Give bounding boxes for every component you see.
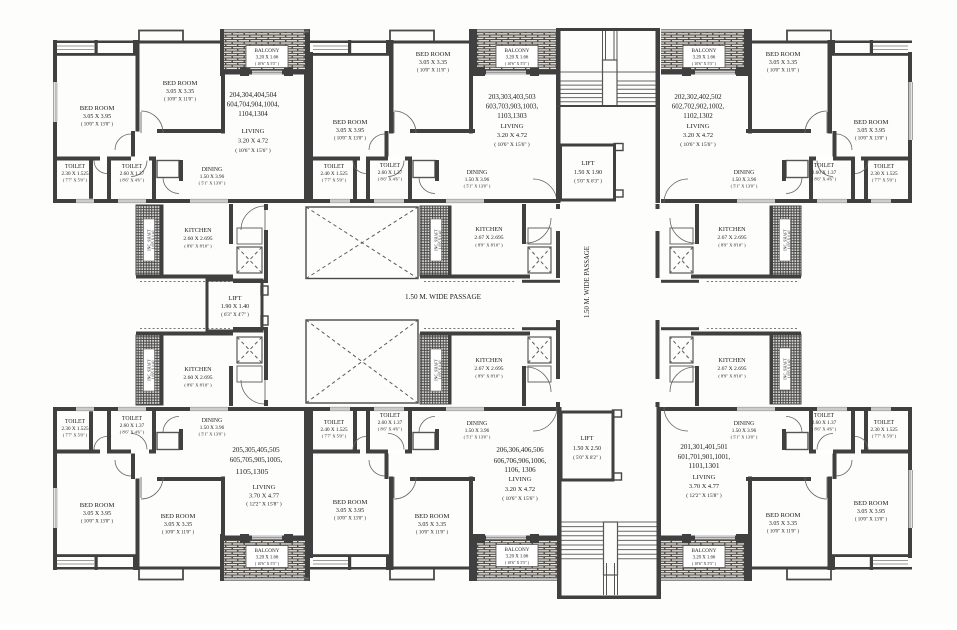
svg-text:( 10'6" X 15'6" ): ( 10'6" X 15'6" ) <box>494 141 530 148</box>
svg-text:3.05 X 3.35: 3.05 X 3.35 <box>164 522 192 528</box>
svg-text:3.20 X 4.72: 3.20 X 4.72 <box>683 132 713 139</box>
svg-text:( 10'6" X 5'5" ): ( 10'6" X 5'5" ) <box>505 61 530 66</box>
svg-text:( 8'6" X 4'6" ): ( 8'6" X 4'6" ) <box>812 427 837 432</box>
svg-text:2.30 X 1.525: 2.30 X 1.525 <box>870 171 897 177</box>
svg-text:( 8'6" X 4'6" ): ( 8'6" X 4'6" ) <box>378 177 403 182</box>
svg-text:BED ROOM: BED ROOM <box>854 119 889 126</box>
svg-text:1.095 X 0.40: 1.095 X 0.40 <box>152 230 156 249</box>
svg-text:206,306,406,506: 206,306,406,506 <box>496 446 544 454</box>
svg-text:3.05 X 3.35: 3.05 X 3.35 <box>769 521 797 527</box>
svg-text:2.60 X 2.695: 2.60 X 2.695 <box>183 236 212 242</box>
svg-text:( 5'1" X 13'0" ): ( 5'1" X 13'0" ) <box>199 181 226 186</box>
svg-text:1105,1305: 1105,1305 <box>236 467 269 476</box>
svg-text:2.67 X 2.695: 2.67 X 2.695 <box>474 366 503 372</box>
svg-text:BED ROOM: BED ROOM <box>163 80 198 87</box>
svg-text:( 10'0" X 11'0" ): ( 10'0" X 11'0" ) <box>416 531 448 536</box>
svg-text:202,302,402,502: 202,302,402,502 <box>674 93 722 101</box>
svg-text:( 10'0" X 11'0" ): ( 10'0" X 11'0" ) <box>164 98 196 103</box>
svg-text:3.20 X 4.72: 3.20 X 4.72 <box>238 138 268 145</box>
svg-text:601,701,901,1001,: 601,701,901,1001, <box>678 453 731 461</box>
svg-text:1.50 X 3.96: 1.50 X 3.96 <box>200 174 225 180</box>
svg-text:BALCONY: BALCONY <box>504 547 529 553</box>
svg-text:LIVING: LIVING <box>687 123 710 130</box>
svg-text:1103,1303: 1103,1303 <box>497 112 527 120</box>
svg-text:3.20 X 4.72: 3.20 X 4.72 <box>505 486 535 493</box>
svg-text:( 8'6" X 4'6" ): ( 8'6" X 4'6" ) <box>812 177 837 182</box>
svg-text:BED ROOM: BED ROOM <box>80 502 115 509</box>
svg-text:KITCHEN: KITCHEN <box>718 357 746 364</box>
svg-text:LIVING: LIVING <box>253 484 276 491</box>
svg-text:( 6'3" X 4'7" ): ( 6'3" X 4'7" ) <box>221 313 249 318</box>
svg-text:( 5'1" X 13'0" ): ( 5'1" X 13'0" ) <box>731 184 758 189</box>
svg-text:( 5'0" X 6'3" ): ( 5'0" X 6'3" ) <box>574 180 602 185</box>
svg-text:( 5'1" X 13'0" ): ( 5'1" X 13'0" ) <box>731 435 758 440</box>
svg-text:2.67 X 2.695: 2.67 X 2.695 <box>717 366 746 372</box>
svg-text:3.05 X 3.35: 3.05 X 3.35 <box>419 60 447 66</box>
svg-text:( 10'0" X 13'0" ): ( 10'0" X 13'0" ) <box>334 517 366 522</box>
svg-text:3.05 X 3.95: 3.05 X 3.95 <box>336 508 364 514</box>
svg-text:1.50 M. WIDE PASSAGE: 1.50 M. WIDE PASSAGE <box>584 246 591 318</box>
svg-text:DINING: DINING <box>734 421 755 427</box>
svg-text:606,706,906,1006,: 606,706,906,1006, <box>494 457 547 465</box>
svg-text:( 10'6" X 5'5" ): ( 10'6" X 5'5" ) <box>255 61 280 66</box>
svg-text:BALCONY: BALCONY <box>254 548 279 554</box>
svg-text:TOILET: TOILET <box>65 164 86 170</box>
svg-text:2.30 X 1.525: 2.30 X 1.525 <box>61 426 88 432</box>
svg-text:( 7'7" X 5'0" ): ( 7'7" X 5'0" ) <box>872 178 897 183</box>
svg-text:2.30 X 1.525: 2.30 X 1.525 <box>61 171 88 177</box>
svg-text:3.05 X 3.95: 3.05 X 3.95 <box>83 511 111 517</box>
svg-text:1102,1302: 1102,1302 <box>683 112 713 120</box>
svg-text:( 8'6" X 4'6" ): ( 8'6" X 4'6" ) <box>378 427 403 432</box>
svg-text:1104,1304: 1104,1304 <box>238 110 268 118</box>
svg-text:DINING: DINING <box>202 418 223 424</box>
svg-text:BED ROOM: BED ROOM <box>766 512 801 519</box>
svg-text:TOILET: TOILET <box>122 164 143 170</box>
svg-text:3.05 X 3.95: 3.05 X 3.95 <box>336 128 364 134</box>
svg-text:( 5'1" X 13'0" ): ( 5'1" X 13'0" ) <box>464 184 491 189</box>
svg-text:TOILET: TOILET <box>874 420 895 426</box>
svg-text:( 10'6" X 15'6" ): ( 10'6" X 15'6" ) <box>235 147 271 154</box>
svg-text:LIFT: LIFT <box>228 295 241 302</box>
svg-text:( 10'0" X 13'0" ): ( 10'0" X 13'0" ) <box>81 520 113 525</box>
svg-text:LIVING: LIVING <box>501 123 524 130</box>
svg-text:BED ROOM: BED ROOM <box>333 499 368 506</box>
svg-text:BED ROOM: BED ROOM <box>333 119 368 126</box>
svg-text:( 8'6" X 4'6" ): ( 8'6" X 4'6" ) <box>120 430 145 435</box>
svg-text:( 10'0" X 13'0" ): ( 10'0" X 13'0" ) <box>81 123 113 128</box>
svg-text:( 8'9" X 8'10" ): ( 8'9" X 8'10" ) <box>718 243 746 248</box>
svg-text:DINING: DINING <box>467 421 488 427</box>
svg-text:KITCHEN: KITCHEN <box>475 226 503 233</box>
svg-text:BED ROOM: BED ROOM <box>415 513 450 520</box>
svg-text:BED ROOM: BED ROOM <box>854 500 889 507</box>
svg-text:TOILET: TOILET <box>380 163 401 169</box>
svg-text:2.60 X 1.37: 2.60 X 1.37 <box>120 171 145 177</box>
svg-text:1101,1301: 1101,1301 <box>688 461 719 470</box>
svg-text:1.50 X 3.96: 1.50 X 3.96 <box>200 425 225 431</box>
svg-text:604,704,904,1004,: 604,704,904,1004, <box>227 101 280 109</box>
svg-text:( 8'6" X 4'6" ): ( 8'6" X 4'6" ) <box>120 178 145 183</box>
svg-text:( 10'0" X 13'0" ): ( 10'0" X 13'0" ) <box>855 518 887 523</box>
svg-text:( 5'0" X 8'2" ): ( 5'0" X 8'2" ) <box>573 456 601 461</box>
svg-text:205,305,405,505: 205,305,405,505 <box>232 446 280 454</box>
svg-text:KITCHEN: KITCHEN <box>184 227 212 234</box>
svg-text:KITCHEN: KITCHEN <box>184 366 212 373</box>
svg-text:( 10'0" X 13'0" ): ( 10'0" X 13'0" ) <box>334 137 366 142</box>
svg-text:1.095 X 0.40: 1.095 X 0.40 <box>439 360 443 379</box>
svg-text:1.50 X 3.96: 1.50 X 3.96 <box>465 177 490 183</box>
svg-text:1.095 X 0.40: 1.095 X 0.40 <box>152 360 156 379</box>
svg-text:3.05 X 3.95: 3.05 X 3.95 <box>857 509 885 515</box>
svg-text:( 7'7" X 5'0" ): ( 7'7" X 5'0" ) <box>322 178 347 183</box>
svg-text:605,705,905,1005,: 605,705,905,1005, <box>230 456 283 464</box>
svg-text:1.50 X 3.96: 1.50 X 3.96 <box>732 428 757 434</box>
svg-text:1.095 X 0.40: 1.095 X 0.40 <box>439 230 443 249</box>
svg-text:LIVING: LIVING <box>509 476 532 483</box>
svg-text:( 5'1" X 13'0" ): ( 5'1" X 13'0" ) <box>464 435 491 440</box>
svg-text:TOILET: TOILET <box>814 163 835 169</box>
svg-text:2.60 X 1.37: 2.60 X 1.37 <box>812 170 837 176</box>
svg-text:( 7'7" X 5'0" ): ( 7'7" X 5'0" ) <box>872 434 897 439</box>
svg-text:3.05 X 3.35: 3.05 X 3.35 <box>418 522 446 528</box>
svg-text:2.60 X 1.37: 2.60 X 1.37 <box>812 420 837 426</box>
svg-text:201,301,401,501: 201,301,401,501 <box>680 443 728 451</box>
svg-text:( 8'9" X 8'10" ): ( 8'9" X 8'10" ) <box>475 243 503 248</box>
svg-text:1.50 M. WIDE PASSAGE: 1.50 M. WIDE PASSAGE <box>405 293 482 301</box>
svg-text:( 10'6" X 5'5" ): ( 10'6" X 5'5" ) <box>255 561 280 566</box>
svg-text:204,304,404,504: 204,304,404,504 <box>229 91 277 99</box>
svg-text:KITCHEN: KITCHEN <box>718 226 746 233</box>
svg-text:3.70 X 4.77: 3.70 X 4.77 <box>249 493 280 500</box>
svg-text:2.60 X 1.37: 2.60 X 1.37 <box>378 420 403 426</box>
svg-text:BALCONY: BALCONY <box>691 548 716 554</box>
svg-text:1.095 X 0.40: 1.095 X 0.40 <box>788 359 792 378</box>
svg-text:2.60 X 1.37: 2.60 X 1.37 <box>120 423 145 429</box>
svg-text:( 12'2" X 15'8" ): ( 12'2" X 15'8" ) <box>686 492 722 499</box>
svg-text:2.30 X 1.525: 2.30 X 1.525 <box>870 427 897 433</box>
svg-text:1.90 X 1.40: 1.90 X 1.40 <box>221 304 249 310</box>
svg-text:TOILET: TOILET <box>874 164 895 170</box>
svg-text:( 12'2" X 15'8" ): ( 12'2" X 15'8" ) <box>246 501 282 508</box>
svg-text:BALCONY: BALCONY <box>254 48 279 54</box>
svg-text:1106, 1306: 1106, 1306 <box>504 466 536 474</box>
svg-text:DINING: DINING <box>467 170 488 176</box>
svg-text:BED ROOM: BED ROOM <box>766 51 801 58</box>
svg-text:BALCONY: BALCONY <box>504 48 529 54</box>
svg-text:1.095 X 0.40: 1.095 X 0.40 <box>788 230 792 249</box>
svg-text:( 8'6" X 8'10" ): ( 8'6" X 8'10" ) <box>184 244 212 249</box>
svg-text:( 10'0" X 11'0" ): ( 10'0" X 11'0" ) <box>767 530 799 535</box>
svg-text:( 10'6" X 15'6" ): ( 10'6" X 15'6" ) <box>502 495 538 502</box>
svg-text:2.60 X 1.37: 2.60 X 1.37 <box>378 170 403 176</box>
svg-text:TOILET: TOILET <box>65 419 86 425</box>
svg-text:( 8'9" X 8'10" ): ( 8'9" X 8'10" ) <box>475 374 503 379</box>
svg-text:LIVING: LIVING <box>693 474 716 481</box>
svg-text:203,303,403,503: 203,303,403,503 <box>488 93 536 101</box>
svg-text:1.50 X 2.50: 1.50 X 2.50 <box>573 446 601 452</box>
svg-text:TOILET: TOILET <box>122 416 143 422</box>
svg-text:( 10'6" X 5'5" ): ( 10'6" X 5'5" ) <box>692 561 717 566</box>
svg-text:LIFT: LIFT <box>581 160 594 167</box>
svg-text:( 7'7" X 5'0" ): ( 7'7" X 5'0" ) <box>322 434 347 439</box>
svg-text:( 8'9" X 8'10" ): ( 8'9" X 8'10" ) <box>718 374 746 379</box>
svg-text:2.67 X 2.695: 2.67 X 2.695 <box>717 235 746 241</box>
svg-text:( 10'0" X 11'0" ): ( 10'0" X 11'0" ) <box>767 69 799 74</box>
svg-text:DINING: DINING <box>734 170 755 176</box>
svg-text:2.40 X 1.525: 2.40 X 1.525 <box>320 171 347 177</box>
svg-text:2.67 X 2.695: 2.67 X 2.695 <box>474 235 503 241</box>
svg-text:( 10'0" X 11'0" ): ( 10'0" X 11'0" ) <box>162 531 194 536</box>
svg-text:( 10'6" X 5'5" ): ( 10'6" X 5'5" ) <box>692 61 717 66</box>
svg-text:1.50 X 3.96: 1.50 X 3.96 <box>732 177 757 183</box>
svg-text:LIFT: LIFT <box>580 435 593 442</box>
svg-text:1.50 X 3.96: 1.50 X 3.96 <box>465 428 490 434</box>
svg-text:( 10'0" X 13'0" ): ( 10'0" X 13'0" ) <box>855 137 887 142</box>
svg-text:BED ROOM: BED ROOM <box>416 51 451 58</box>
svg-text:TOILET: TOILET <box>814 413 835 419</box>
svg-text:TOILET: TOILET <box>324 164 345 170</box>
svg-text:1.50 X 1.90: 1.50 X 1.90 <box>574 170 602 176</box>
svg-text:LIVING: LIVING <box>242 128 265 135</box>
svg-text:( 10'6" X 15'6" ): ( 10'6" X 15'6" ) <box>680 141 716 148</box>
svg-text:3.20 X 4.72: 3.20 X 4.72 <box>497 132 527 139</box>
svg-text:3.05 X 3.35: 3.05 X 3.35 <box>166 89 194 95</box>
svg-text:( 10'0" X 11'0" ): ( 10'0" X 11'0" ) <box>417 69 449 74</box>
svg-text:( 5'1" X 13'0" ): ( 5'1" X 13'0" ) <box>199 432 226 437</box>
svg-text:3.05 X 3.35: 3.05 X 3.35 <box>769 60 797 66</box>
svg-text:KITCHEN: KITCHEN <box>475 357 503 364</box>
svg-text:BED ROOM: BED ROOM <box>161 513 196 520</box>
svg-text:2.60 X 2.695: 2.60 X 2.695 <box>183 375 212 381</box>
svg-text:( 10'6" X 5'5" ): ( 10'6" X 5'5" ) <box>505 560 530 565</box>
svg-text:TOILET: TOILET <box>380 413 401 419</box>
svg-text:DINING: DINING <box>202 167 223 173</box>
svg-text:( 7'7" X 5'0" ): ( 7'7" X 5'0" ) <box>63 178 88 183</box>
svg-text:3.05 X 3.95: 3.05 X 3.95 <box>857 128 885 134</box>
svg-text:( 7'7" X 5'0" ): ( 7'7" X 5'0" ) <box>63 433 88 438</box>
svg-text:BALCONY: BALCONY <box>691 48 716 54</box>
svg-text:3.70 X 4.77: 3.70 X 4.77 <box>689 483 720 490</box>
svg-text:TOILET: TOILET <box>324 420 345 426</box>
svg-text:3.05 X 3.95: 3.05 X 3.95 <box>83 114 111 120</box>
svg-text:( 8'6" X 8'10" ): ( 8'6" X 8'10" ) <box>184 383 212 388</box>
svg-text:2.40 X 1.525: 2.40 X 1.525 <box>320 427 347 433</box>
svg-text:603,703,903,1003,: 603,703,903,1003, <box>486 103 539 111</box>
svg-text:602,702,902,1002,: 602,702,902,1002, <box>672 103 725 111</box>
svg-text:BED ROOM: BED ROOM <box>80 105 115 112</box>
